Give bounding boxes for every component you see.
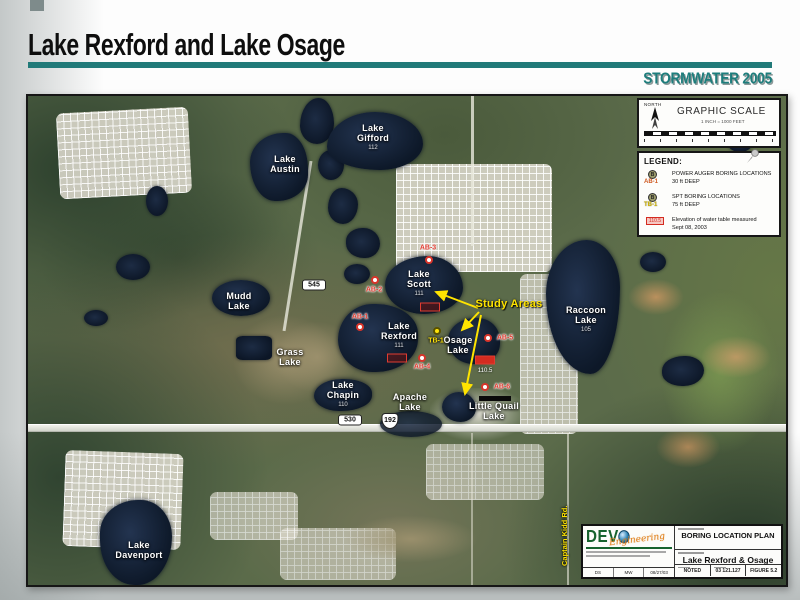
title-block-logo-panel: DEVODEV Engineering DS MW 08/27/03 [583,526,675,577]
legend-item-auger: B AB-1 POWER AUGER BORING LOCATIONS 30 f… [644,170,778,190]
project-no-field: 03 121.127 [711,565,747,576]
legend-item-elevation: 110.5 Elevation of water table measured … [644,216,778,236]
title-block-text-panel: BORING LOCATION PLAN Lake Rexford & Osag… [675,526,781,577]
legend-item-spt: B TB-1 SPT BORING LOCATIONS 75 ft DEEP [644,193,778,213]
address-line [586,555,650,557]
field-label-bar [714,567,726,569]
drawn-by: DS [583,568,614,577]
graphic-scale-ratio: 1 INCH = 1000 FEET [701,119,745,124]
corner-decoration [30,0,44,11]
spt-boring-icon: B [648,193,657,202]
figure-name-cell: BORING LOCATION PLAN [675,526,781,550]
north-arrow-icon [646,107,664,131]
legend-text: POWER AUGER BORING LOCATIONS [672,171,771,177]
address-line [586,551,666,553]
page-title: Lake Rexford and Lake Osage [28,28,345,63]
project-name: Lake Rexford & Osage [683,555,774,565]
logo-rule [586,547,672,549]
legend-text: 30 ft DEEP [672,179,700,185]
slide: Lake Rexford and Lake Osage STORMWATER 2… [0,0,800,600]
project-name-cell: Lake Rexford & Osage [675,550,781,565]
legend-box: LEGEND: B AB-1 POWER AUGER BORING LOCATI… [637,151,781,237]
legend-text: Sept 08, 2003 [672,225,707,231]
elevation-box-icon: 110.5 [646,217,664,225]
legend-text: SPT BORING LOCATIONS [672,194,740,200]
aerial-map: LakeAustin LakeGifford 112 MuddLake Gras… [26,94,788,587]
legend-text: 75 ft DEEP [672,202,700,208]
study-areas-label: Study Areas [475,298,542,310]
field-label-bar [678,567,690,569]
route-marker-545: 545 [302,280,326,291]
pushpin-icon [743,149,761,165]
field-label-bar [678,528,704,530]
drafting-fields: DS MW 08/27/03 [583,567,674,577]
scale-bar-ticks [644,139,776,142]
graphic-scale-title: GRAPHIC SCALE [677,106,766,117]
figure-name: BORING LOCATION PLAN [681,531,774,540]
title-block-footer: NOTED 03 121.127 FIGURE 5.2 [675,565,781,576]
title-block: DEVODEV Engineering DS MW 08/27/03 BORIN… [581,524,783,579]
street-label-captain-kidd: Captain Kidd Rd. [560,506,569,566]
route-marker-530: 530 [338,415,362,426]
graphic-scale-box: NORTH GRAPHIC SCALE 1 INCH = 1000 FEET [637,98,781,148]
scale-bar [644,131,776,136]
date-field: 08/27/03 [644,568,674,577]
legend-title: LEGEND: [644,157,682,166]
figure-no-field: FIGURE 5.2 [746,565,781,576]
field-label-bar [678,552,704,554]
accent-rule [28,62,772,68]
auger-boring-icon: B [648,170,657,179]
program-banner: STORMWATER 2005 [643,70,772,88]
legend-text: Elevation of water table measured [672,217,757,223]
auger-boring-id: AB-1 [644,179,658,185]
scale-field: NOTED [675,565,711,576]
spt-boring-id: TB-1 [644,202,657,208]
checked-by: MW [614,568,645,577]
